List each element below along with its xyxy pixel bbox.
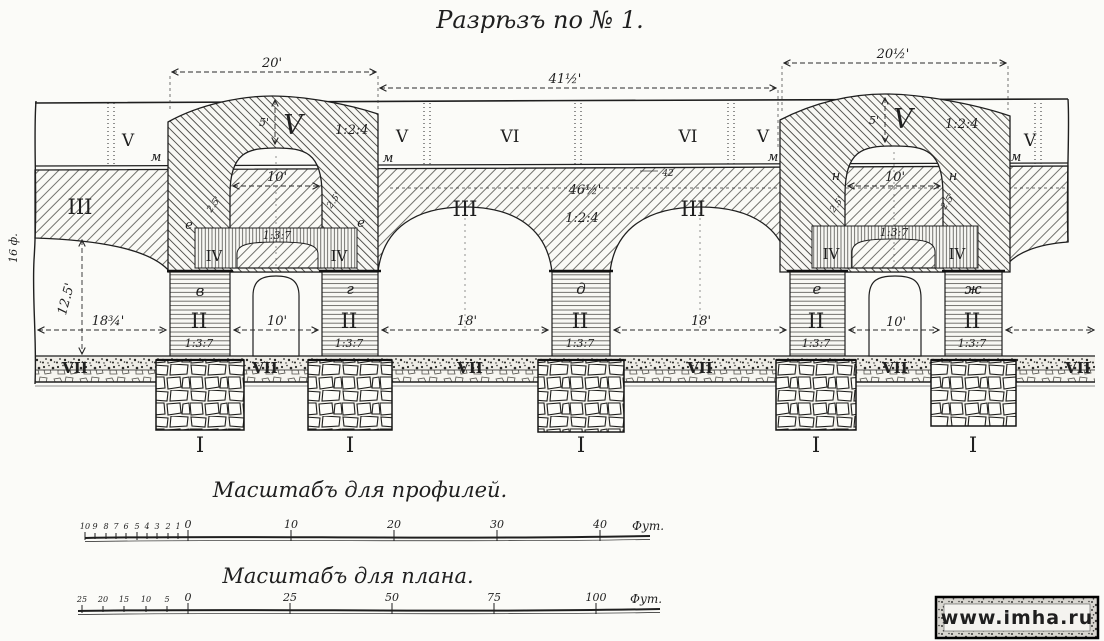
profile-scale-ticks (85, 530, 600, 541)
plan-scale-mainnumbers: 25 50 75 100 (282, 591, 607, 604)
p-main-0: 10 (284, 518, 298, 531)
profile-scale-bar-2 (85, 540, 650, 542)
dim-door-upper-right-label: 10' (885, 170, 905, 185)
plan-scale-bar (78, 609, 660, 611)
roof-label-v-2: V (395, 127, 409, 147)
roof-label-v-3: V (756, 127, 770, 147)
dim-top-right-label: 20½' (876, 47, 910, 62)
foundation-1: I (156, 360, 244, 457)
plan-scale-unit: Фут. (630, 592, 662, 606)
pier-3-letter: д (576, 280, 586, 298)
foundation-3-label: I (577, 433, 585, 457)
pier-2-letter: г (346, 280, 354, 298)
foundation-2-label: I (346, 433, 354, 457)
ground-label-4: VII (686, 359, 713, 377)
watermark: www.imha.ru (936, 597, 1098, 638)
pier-1-numeral: II (191, 309, 208, 333)
dim-door-upper-left-label: 10' (267, 170, 287, 185)
drawing-title: Разрѣзъ по № 1. (435, 6, 644, 34)
dim-door-lower-right-label: 10' (886, 315, 906, 330)
point-m-right-1: м (768, 150, 779, 165)
pier-1: в II 1:3:7 (167, 271, 233, 356)
p-sub-2: 8 (103, 522, 108, 531)
foundation-1-label: I (196, 433, 204, 457)
traverse-left-numeral: V (283, 110, 305, 141)
profile-scale-title: Масштабъ для профилей. (212, 478, 507, 502)
dim-crown-left-label: 5' (259, 116, 269, 129)
point-n-right-2: н (949, 169, 958, 184)
dim-bay-left-label: 18¾' (92, 314, 125, 329)
pier-5-letter: ж (964, 280, 981, 298)
pl-main-3: 100 (586, 591, 607, 604)
point-m-left-1: м (151, 150, 162, 165)
p-main-2: 30 (490, 518, 504, 531)
traverse-right-ratio: 1:2:4 (945, 117, 979, 132)
p-sub-8: 2 (164, 522, 170, 531)
pier-3-numeral: II (572, 309, 589, 333)
roof-label-vi-2: VI (678, 127, 698, 147)
point-m-right-2: м (1011, 150, 1022, 165)
traverse-left-band-ratio: 1:3:7 (263, 229, 291, 242)
pier-3: д II 1:3:7 (549, 271, 613, 356)
profile-scale-mainnumbers: 10 20 30 40 (284, 518, 607, 531)
pier-2: г II 1:3:7 (319, 271, 381, 356)
profile-scale-subnumbers: 10 9 8 7 6 5 4 3 2 1 0 (80, 518, 192, 531)
pier-5-ratio: 1:3:7 (958, 337, 986, 350)
plan-scale-title: Масштабъ для плана. (221, 564, 473, 588)
roof-label-v-1: V (121, 131, 135, 151)
dim-bay-mid1-label: 18' (457, 314, 477, 329)
point-n-right-1: н (832, 169, 841, 184)
foundation-2: I (308, 360, 392, 457)
pier-1-letter: в (196, 282, 205, 300)
ground-label-3: VII (456, 359, 483, 377)
profile-scale-unit: Фут. (632, 519, 664, 533)
scale-plan: Масштабъ для плана. 25 20 15 10 5 0 25 5… (76, 564, 662, 615)
scale-profile: Масштабъ для профилей. 10 9 8 7 6 5 4 3 … (80, 478, 664, 542)
pl-sub-0: 25 (76, 595, 87, 604)
pl-sub-2: 15 (119, 595, 129, 604)
pier-4: е II 1:3:7 (787, 271, 848, 356)
ground-label-1: VII (61, 359, 88, 377)
dim-top-middle-label: 41½' (548, 72, 582, 87)
ground-label-5: VII (881, 359, 908, 377)
p-sub-6: 4 (143, 522, 149, 531)
pier-5-numeral: II (964, 309, 981, 333)
section-drawing: Разрѣзъ по № 1. V V VI VI V V III III II… (0, 0, 1104, 641)
pl-main-1: 50 (385, 591, 399, 604)
roof-label-vi-1: VI (500, 127, 520, 147)
ground-label-2: VII (251, 359, 278, 377)
pl-sub-1: 20 (97, 595, 108, 604)
plan-scale-bar-2 (78, 613, 660, 615)
mass-span-dim: 46½' (568, 183, 602, 198)
p-sub-5: 5 (134, 522, 139, 531)
roof-label-v-4: V (1023, 131, 1037, 151)
pl-sub-5: 0 (185, 591, 192, 604)
dim-top-left-label: 20' (261, 56, 282, 71)
p-sub-3: 7 (113, 522, 119, 531)
plan-scale-subnumbers: 25 20 15 10 5 0 (76, 591, 192, 604)
p-main-3: 40 (592, 518, 607, 531)
p-sub-1: 9 (92, 522, 97, 531)
foundation-5: I (931, 360, 1016, 457)
traverse-right-band-numeral-r: IV (949, 245, 967, 263)
pier-4-ratio: 1:3:7 (802, 337, 830, 350)
pier-3-ratio: 1:3:7 (566, 337, 594, 350)
point-m-left-2: м (383, 151, 394, 166)
p-sub-4: 6 (123, 522, 128, 531)
pl-sub-3: 10 (141, 595, 151, 604)
foundation-4-label: I (812, 433, 820, 457)
ground-label-6: VII (1064, 359, 1091, 377)
dim-edge-height-label: 16 ф. (7, 233, 20, 263)
scanned-drawing-page: Разрѣзъ по № 1. V V VI VI V V III III II… (0, 0, 1104, 641)
left-cut-edge (34, 101, 36, 384)
traverse-left-band-numeral-l: IV (206, 247, 224, 265)
pier-5: ж II 1:3:7 (942, 271, 1005, 356)
pier-4-letter: е (813, 280, 822, 298)
dim-pier-height-label: 12.5' (55, 281, 78, 316)
p-sub-7: 3 (154, 522, 159, 531)
mass-note: 42 (661, 169, 674, 179)
dim-crown-right-label: 5' (869, 114, 879, 127)
p-sub-10: 0 (185, 518, 192, 531)
foundation-5-label: I (969, 433, 977, 457)
pier-1-ratio: 1:3:7 (185, 337, 213, 350)
foundation-3: I (538, 360, 624, 457)
mass-label-left: III (68, 195, 93, 219)
p-main-1: 20 (386, 518, 401, 531)
traverse-right-band-numeral-l: IV (823, 245, 841, 263)
traverse-left-band-numeral-r: IV (331, 247, 349, 265)
plan-scale-ticks (82, 603, 596, 614)
pier-2-numeral: II (341, 309, 358, 333)
watermark-text: www.imha.ru (941, 607, 1093, 629)
p-sub-9: 1 (175, 522, 180, 531)
pier-4-numeral: II (808, 309, 825, 333)
traverse-left-ratio: 1:2:4 (335, 123, 369, 138)
dim-bay-mid2-label: 18' (691, 314, 711, 329)
point-e-left-2: е (357, 216, 365, 231)
dim-door-lower-left-label: 10' (267, 314, 287, 329)
mass-label-center: III (453, 197, 478, 221)
pl-sub-4: 5 (164, 595, 169, 604)
mass-ratio: 1:2:4 (565, 211, 599, 226)
p-sub-0: 10 (80, 522, 90, 531)
foundation-4: I (776, 360, 856, 457)
pl-main-2: 75 (487, 591, 501, 604)
profile-scale-bar (85, 536, 650, 538)
pl-main-0: 25 (282, 591, 297, 604)
point-e-left-1: е (185, 218, 193, 233)
traverse-right-numeral: V (893, 104, 915, 135)
pier-2-ratio: 1:3:7 (335, 337, 363, 350)
mass-label-right: III (681, 197, 706, 221)
